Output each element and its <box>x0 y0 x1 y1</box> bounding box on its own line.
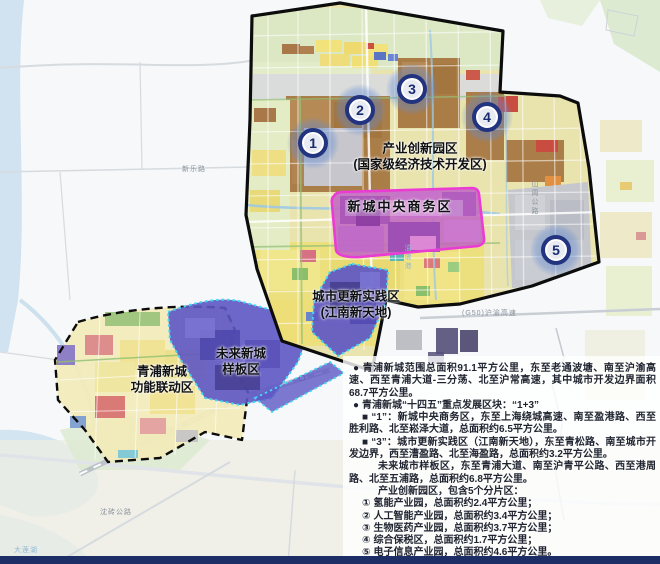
panel-paragraph: ③生物医药产业园，总面积约3.7平方公里； <box>349 523 656 535</box>
panel-paragraph: ④综合保税区，总面积约1.7平方公里； <box>349 535 656 547</box>
road-label-shenzhuan: 沈砖公路 <box>100 507 132 517</box>
panel-paragraph: ■“1”：新城中央商务区，东至上海绕城高速、南至盈港路、西至胜利路、北至崧泽大道… <box>349 412 656 437</box>
numbered-marker-5: 5 <box>530 224 582 276</box>
main-planning-area <box>246 0 600 371</box>
numbered-marker-4: 4 <box>461 91 513 143</box>
road-label-xinle: 新乐路 <box>182 164 206 174</box>
marker-ring: 1 <box>298 128 328 158</box>
lake-label-dalianhu: 大莲湖 <box>14 545 38 555</box>
panel-paragraph: 未来城市样板区，东至青浦大道、南至沪青平公路、西至港周路、北至五浦路，总面积约6… <box>349 461 656 486</box>
label-future-city: 未来新城 样板区 <box>216 346 266 377</box>
numbered-marker-1: 1 <box>287 117 339 169</box>
road-label-shanzhou: 山周公路 <box>529 180 539 216</box>
road-label-g50: (G50)沪渝高速 <box>462 308 517 318</box>
marker-ring: 3 <box>397 74 427 104</box>
info-panel: ●青浦新城范围总面积91.1平方公里，东至老通波塘、南至沪渝高速、西至青浦大道-… <box>343 356 660 557</box>
marker-ring: 4 <box>472 102 502 132</box>
panel-paragraph: ●青浦新城“十四五”重点发展区块：“1+3” <box>349 400 656 412</box>
label-industry-park: 产业创新园区 (国家级经济技术开发区) <box>353 141 486 172</box>
panel-paragraph: ②人工智能产业园，总面积约3.4平方公里； <box>349 511 656 523</box>
numbered-marker-2: 2 <box>334 84 386 136</box>
river-label-youdungang: 油墩港 <box>402 244 412 271</box>
numbered-marker-3: 3 <box>386 63 438 115</box>
label-urban-renewal: 城市更新实践区 (江南新天地) <box>312 289 400 320</box>
bottom-bar <box>0 556 660 564</box>
label-cbd: 新城中央商务区 <box>347 199 452 215</box>
panel-paragraph: ①氢能产业园，总面积约2.4平方公里； <box>349 498 656 510</box>
planning-map: 产业创新园区 (国家级经济技术开发区) 新城中央商务区 城市更新实践区 (江南新… <box>0 0 660 564</box>
panel-paragraph: 产业创新园区，包含5个分片区： <box>349 486 656 498</box>
marker-ring: 2 <box>345 95 375 125</box>
label-linkage-zone: 青浦新城 功能联动区 <box>131 364 194 395</box>
panel-paragraph: ●青浦新城范围总面积91.1平方公里，东至老通波塘、南至沪渝高速、西至青浦大道-… <box>349 363 656 400</box>
marker-ring: 5 <box>541 235 571 265</box>
panel-paragraph: ■“3”：城市更新实践区（江南新天地），东至青松路、南至城市开发边界，西至漕盈路… <box>349 437 656 462</box>
